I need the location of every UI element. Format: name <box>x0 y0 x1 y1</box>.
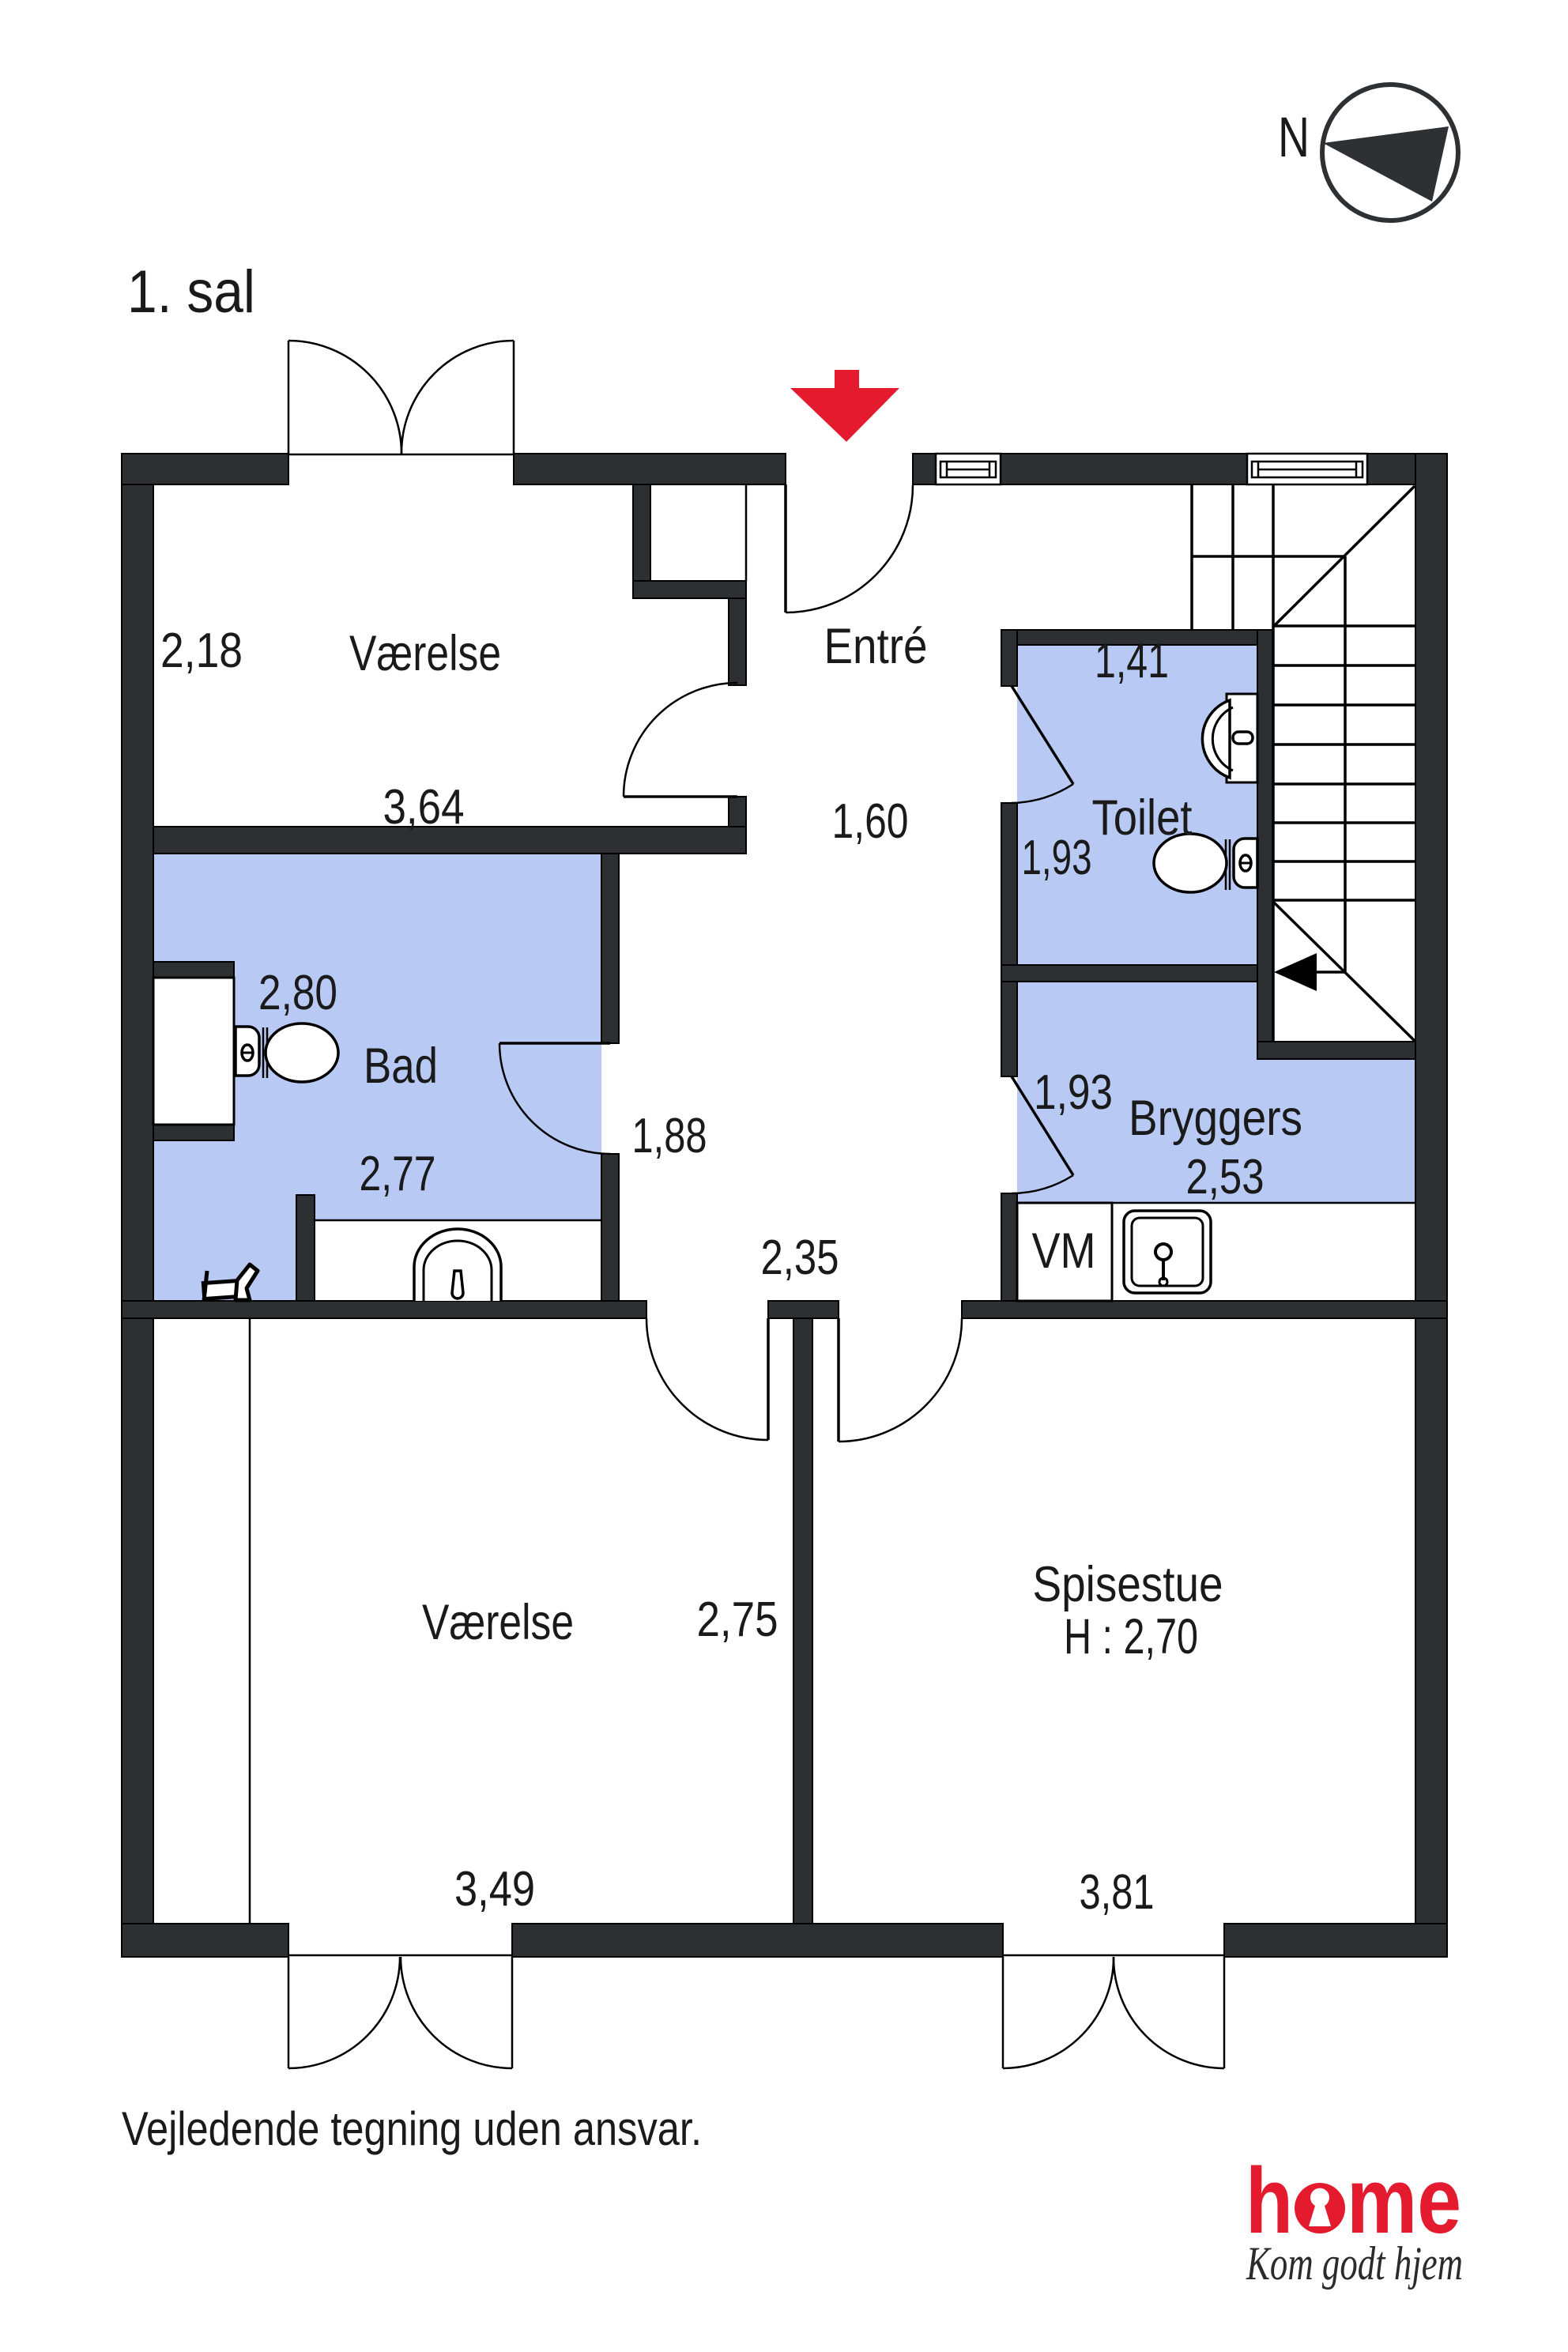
svg-text:Bad: Bad <box>364 1038 438 1094</box>
svg-text:Værelse: Værelse <box>422 1595 574 1650</box>
svg-text:Værelse: Værelse <box>349 626 501 681</box>
svg-text:3,81: 3,81 <box>1080 1865 1155 1920</box>
svg-text:3,49: 3,49 <box>454 1862 535 1917</box>
svg-text:N: N <box>1278 107 1310 169</box>
svg-text:2,53: 2,53 <box>1186 1150 1265 1204</box>
svg-text:3,64: 3,64 <box>383 780 465 835</box>
svg-text:Spisestue: Spisestue <box>1033 1557 1223 1612</box>
svg-text:2,18: 2,18 <box>160 624 243 678</box>
svg-text:VM: VM <box>1032 1223 1096 1279</box>
svg-text:1,93: 1,93 <box>1022 831 1092 885</box>
svg-text:Toilet: Toilet <box>1092 790 1193 846</box>
svg-text:Bryggers: Bryggers <box>1129 1091 1302 1146</box>
svg-text:1. sal: 1. sal <box>127 258 255 326</box>
svg-text:H : 2,70: H : 2,70 <box>1064 1609 1198 1664</box>
svg-text:Vejledende tegning uden ansvar: Vejledende tegning uden ansvar. <box>122 2102 702 2155</box>
svg-text:Entré: Entré <box>824 619 928 674</box>
svg-text:2,77: 2,77 <box>360 1147 436 1201</box>
svg-text:2,75: 2,75 <box>697 1592 778 1647</box>
svg-text:1,88: 1,88 <box>632 1109 707 1163</box>
svg-text:2,80: 2,80 <box>258 966 337 1020</box>
svg-text:1,41: 1,41 <box>1095 634 1169 688</box>
svg-text:2,35: 2,35 <box>761 1231 839 1285</box>
svg-text:1,93: 1,93 <box>1034 1065 1113 1120</box>
svg-text:Kom godt hjem: Kom godt hjem <box>1246 2237 1463 2290</box>
svg-text:1,60: 1,60 <box>832 794 909 849</box>
